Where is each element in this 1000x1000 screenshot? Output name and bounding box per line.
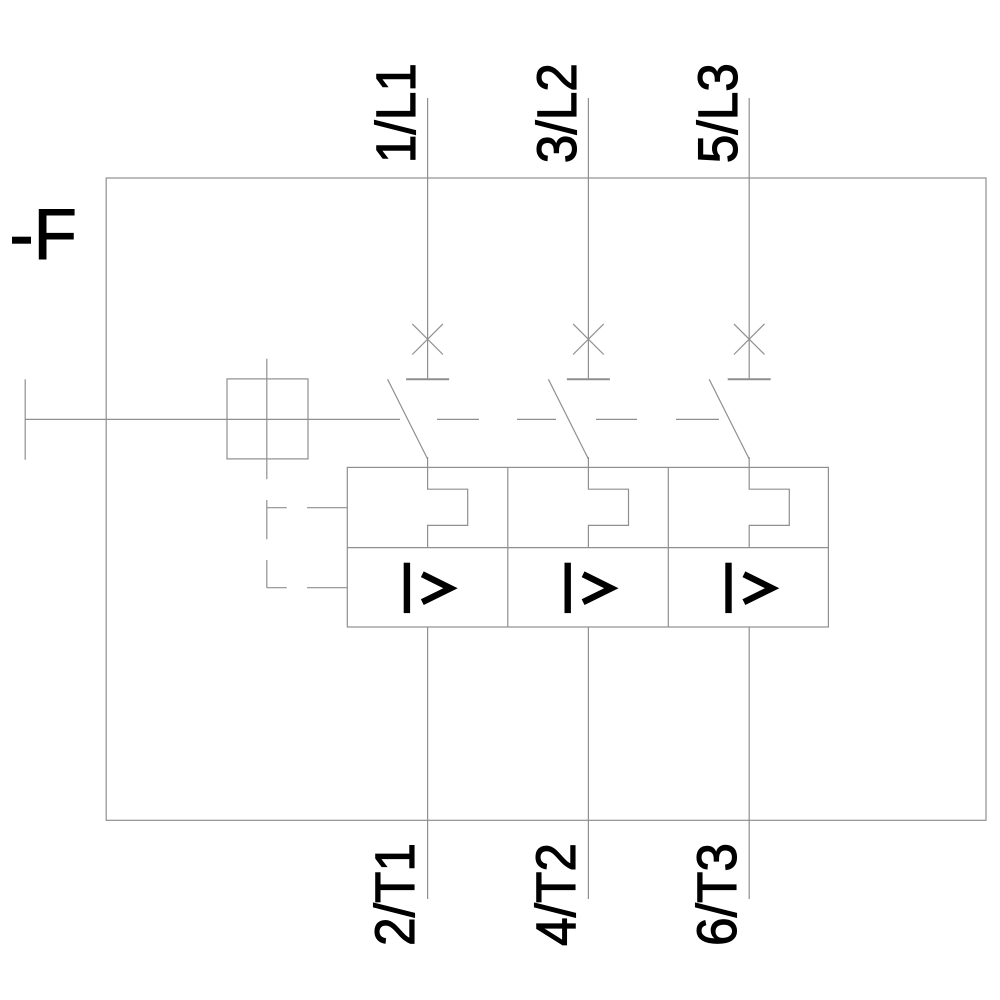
svg-text:1/L1: 1/L1 [365,63,427,163]
svg-text:5/L3: 5/L3 [687,63,749,163]
svg-text:2/T1: 2/T1 [364,843,426,946]
svg-text:6/T3: 6/T3 [686,843,748,946]
svg-text:4/T2: 4/T2 [525,843,587,946]
svg-text:3/L2: 3/L2 [526,63,588,163]
svg-text:F: F [34,196,77,275]
